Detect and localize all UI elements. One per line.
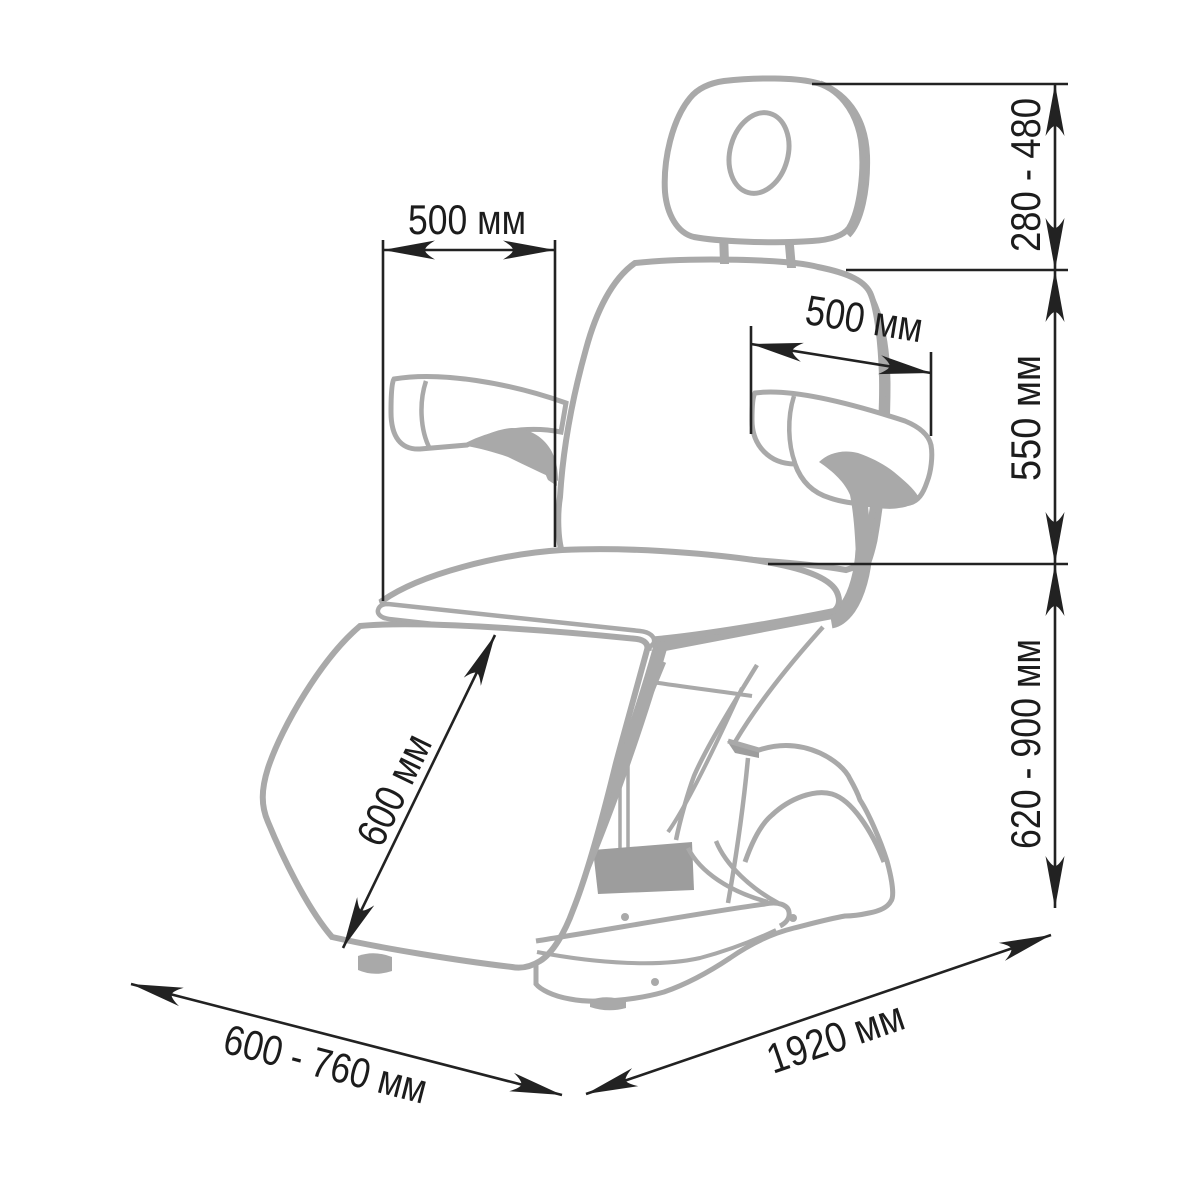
svg-text:620 - 900 мм: 620 - 900 мм: [1002, 639, 1049, 849]
svg-text:550 мм: 550 мм: [1002, 355, 1049, 481]
svg-text:500 мм: 500 мм: [408, 196, 526, 243]
svg-text:280 - 480: 280 - 480: [1002, 98, 1049, 252]
